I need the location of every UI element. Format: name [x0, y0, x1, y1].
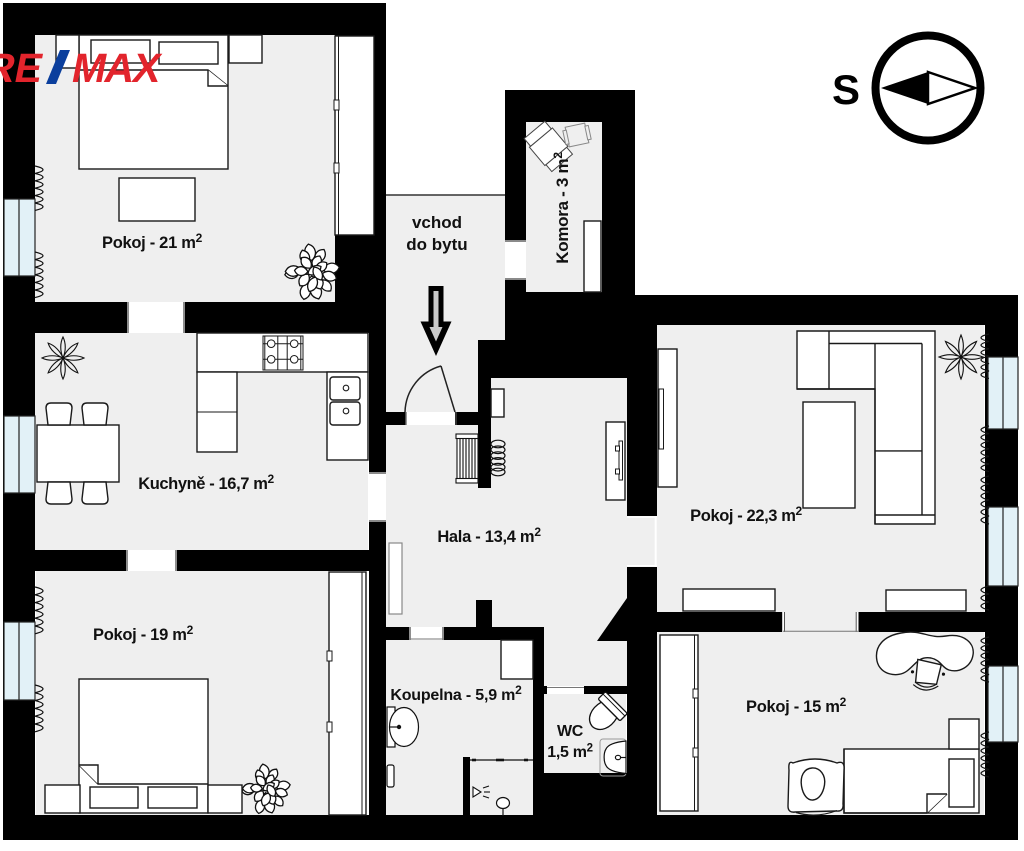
svg-text:Pokoj - 15 m2: Pokoj - 15 m2: [746, 695, 847, 716]
svg-text:S: S: [832, 66, 860, 113]
svg-text:vchod: vchod: [412, 213, 462, 232]
svg-text:Pokoj - 19 m2: Pokoj - 19 m2: [93, 623, 194, 644]
svg-text:MAX: MAX: [68, 45, 165, 91]
svg-text:1,5 m2: 1,5 m2: [547, 743, 593, 762]
svg-text:Pokoj - 21 m2: Pokoj - 21 m2: [102, 231, 203, 252]
svg-text:do bytu: do bytu: [406, 235, 467, 254]
svg-text:Hala - 13,4 m2: Hala - 13,4 m2: [437, 525, 541, 546]
svg-text:Kuchyně - 16,7 m2: Kuchyně - 16,7 m2: [138, 472, 274, 493]
svg-text:Komora - 3 m2: Komora - 3 m2: [551, 152, 572, 264]
svg-text:Koupelna - 5,9 m2: Koupelna - 5,9 m2: [390, 683, 522, 704]
svg-text:WC: WC: [557, 723, 584, 740]
svg-text:Pokoj - 22,3 m2: Pokoj - 22,3 m2: [690, 504, 802, 525]
